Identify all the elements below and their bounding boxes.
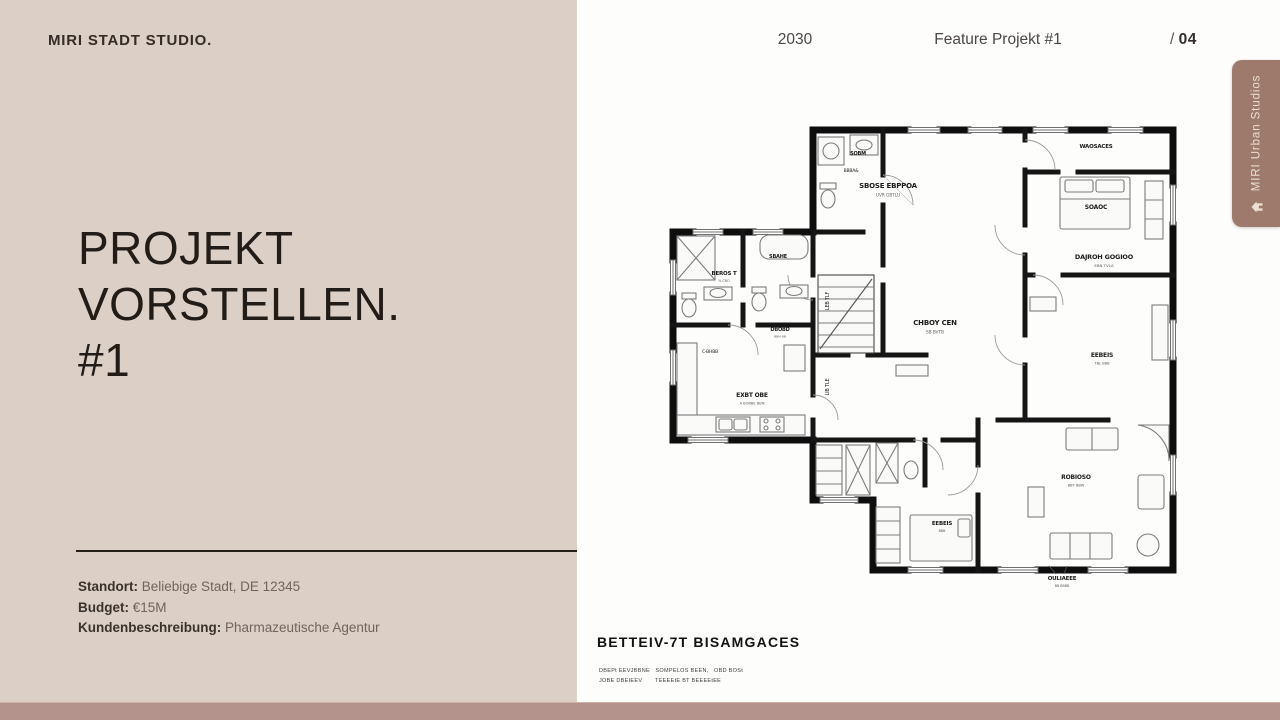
svg-text:SBAHE: SBAHE — [769, 254, 788, 260]
detail-kunde: Kundenbeschreibung: Pharmazeutische Agen… — [78, 618, 380, 639]
detail-label: Standort: — [78, 579, 138, 594]
svg-text:BBM BB: BBM BB — [774, 335, 786, 339]
header-year: 2030 — [755, 31, 835, 49]
svg-text:SOAOC: SOAOC — [1085, 204, 1108, 211]
home-icon — [1250, 200, 1263, 213]
floorplan-image: SBOSE EBPPOAUVR GBTLUSOBMBBBA&WAOSACESSO… — [668, 125, 1178, 600]
svg-text:CHBOY CEN: CHBOY CEN — [913, 319, 957, 327]
floorplan-subtext-2: JOBE DBEIEEV TEEEEtE BT BEEEEtEE — [599, 678, 899, 684]
corner-shelf — [1138, 425, 1169, 461]
detail-value: Beliebige Stadt, DE 12345 — [142, 579, 300, 594]
svg-text:EEBEIS: EEBEIS — [932, 521, 953, 527]
page-number: 04 — [1179, 31, 1197, 48]
toilet-2 — [821, 190, 835, 208]
svg-text:TBL BBB: TBL BBB — [1093, 362, 1110, 366]
title-line-2: #1 — [78, 332, 577, 388]
detail-value: Pharmazeutische Agentur — [225, 620, 380, 635]
sofa — [1050, 533, 1112, 559]
header-feature: Feature Projekt #1 — [898, 31, 1098, 49]
wardrobe — [1145, 181, 1163, 239]
svg-text:WAOSACES: WAOSACES — [1079, 144, 1112, 150]
page-title: PROJEKT VORSTELLEN. #1 — [78, 220, 577, 388]
svg-text:EEBEIS: EEBEIS — [1091, 352, 1113, 359]
svg-text:BBB: BBB — [939, 529, 947, 533]
toilet-3 — [682, 299, 696, 317]
svg-text:UVR GBTLU: UVR GBTLU — [876, 193, 900, 198]
dresser — [1152, 305, 1168, 360]
right-panel: 2030 Feature Projekt #1 / 04 — [577, 0, 1280, 702]
armchair — [1138, 475, 1164, 509]
footer-strip — [0, 702, 1280, 720]
floorplan-subtext-1: DBEPt EEVJBBNE SOMPELOS BEEN, OBD BOSt — [599, 668, 899, 674]
svg-text:SB BVTB: SB BVTB — [926, 330, 944, 335]
presentation-slide: MIRI STADT STUDIO. PROJEKT VORSTELLEN. #… — [0, 0, 1280, 720]
project-details: Standort: Beliebige Stadt, DE 12345 Budg… — [78, 577, 380, 639]
svg-text:BBT BBW: BBT BBW — [1068, 484, 1085, 488]
detail-value: €15M — [133, 600, 167, 615]
svg-text:LIB TLE: LIB TLE — [825, 379, 831, 396]
svg-text:BB BBBB: BB BBBB — [1055, 584, 1070, 588]
svg-text:DBOBD: DBOBD — [770, 327, 789, 333]
svg-text:OULIAEEE: OULIAEEE — [1048, 576, 1077, 582]
svg-text:A BORBE BBN: A BORBE BBN — [740, 402, 765, 406]
floorplan-caption: BETTEIV-7T BISAMGACES — [597, 634, 897, 650]
detail-budget: Budget: €15M — [78, 598, 380, 619]
detail-label: Kundenbeschreibung: — [78, 620, 221, 635]
detail-standort: Standort: Beliebige Stadt, DE 12345 — [78, 577, 380, 598]
page-prefix: / — [1170, 31, 1179, 48]
furniture — [677, 135, 1169, 563]
svg-text:C-BHBB: C-BHBB — [702, 349, 718, 355]
floorplan-svg: SBOSE EBPPOAUVR GBTLUSOBMBBBA&WAOSACESSO… — [668, 125, 1178, 600]
svg-text:EBN TVLA: EBN TVLA — [1094, 263, 1114, 268]
closet-2 — [816, 445, 842, 495]
toilet-4 — [752, 293, 766, 311]
fridge — [784, 345, 805, 371]
side-tab-content: MIRI Urban Studios — [1232, 60, 1280, 227]
detail-label: Budget: — [78, 600, 129, 615]
svg-text:SOBM: SOBM — [850, 151, 866, 157]
svg-text:SBOSE EBPPOA: SBOSE EBPPOA — [859, 182, 918, 190]
divider-line — [76, 550, 577, 552]
studio-logo: MIRI STADT STUDIO. — [48, 32, 212, 49]
svg-text:LEB TLF: LEB TLF — [825, 292, 831, 311]
cabinet — [1028, 487, 1044, 517]
toilet — [904, 461, 918, 479]
title-line-1: PROJEKT VORSTELLEN. — [78, 220, 577, 332]
side-table — [1137, 534, 1159, 556]
svg-text:BEROS T: BEROS T — [711, 271, 737, 277]
left-panel: MIRI STADT STUDIO. PROJEKT VORSTELLEN. #… — [0, 0, 577, 702]
stove — [760, 417, 784, 432]
svg-text:% CRO: % CRO — [718, 279, 730, 283]
svg-text:ROBIOSO: ROBIOSO — [1061, 474, 1091, 481]
page-indicator: / 04 — [1170, 31, 1197, 49]
svg-text:EXBT OBE: EXBT OBE — [736, 392, 768, 399]
svg-text:DAJROH GOGIOO: DAJROH GOGIOO — [1075, 253, 1134, 261]
svg-text:BBBA&: BBBA& — [844, 168, 860, 174]
side-tab-label: MIRI Urban Studios — [1250, 74, 1262, 191]
side-tab-bookmark[interactable]: MIRI Urban Studios — [1232, 60, 1280, 227]
